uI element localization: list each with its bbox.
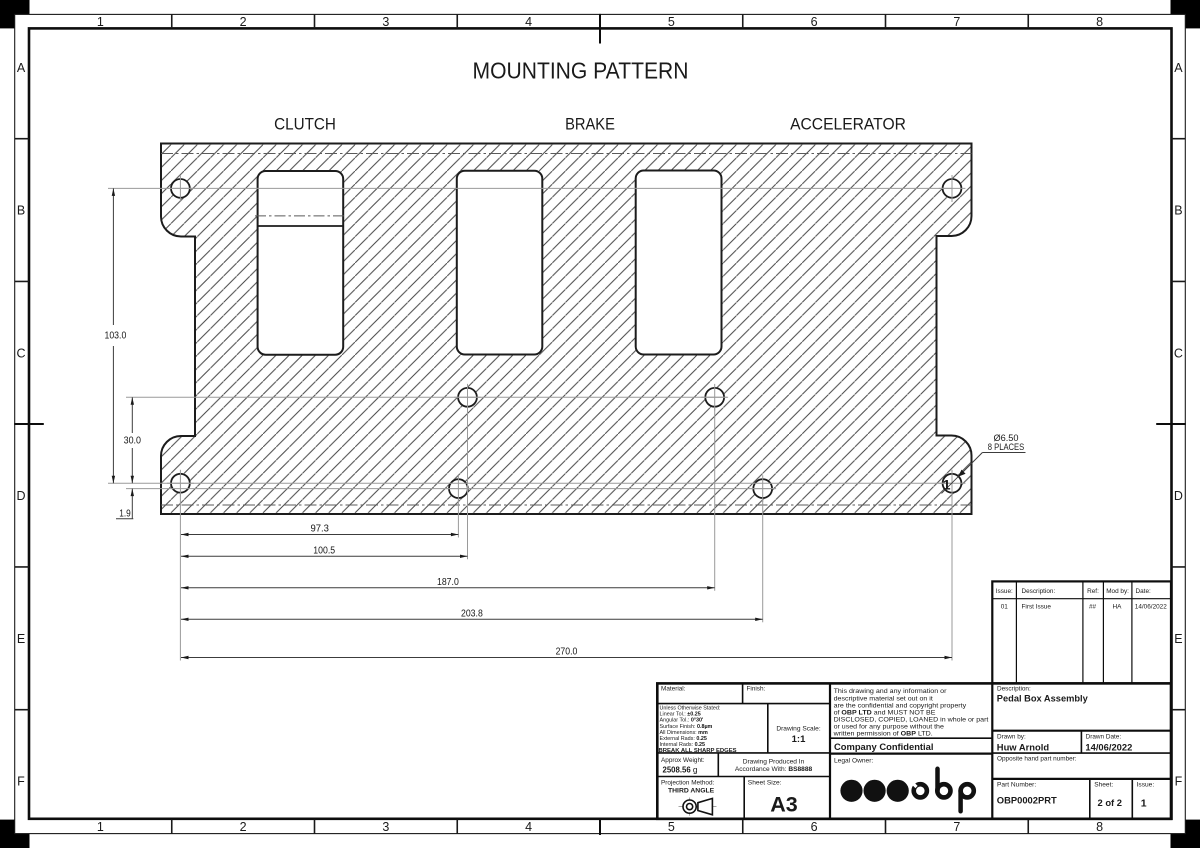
svg-text:Approx Weight:: Approx Weight:	[661, 757, 705, 764]
svg-text:7: 7	[953, 15, 960, 29]
svg-text:Finish:: Finish:	[747, 686, 766, 693]
svg-text:270.0: 270.0	[556, 647, 578, 658]
svg-text:8: 8	[1096, 820, 1103, 834]
svg-text:Description:: Description:	[997, 686, 1031, 693]
svg-text:Angular Tol.: 0°30': Angular Tol.: 0°30'	[660, 718, 704, 724]
svg-text:A: A	[1174, 61, 1183, 75]
svg-text:Unless Otherwise Stated:: Unless Otherwise Stated:	[660, 705, 721, 711]
svg-text:B: B	[1174, 204, 1182, 218]
svg-text:30.0: 30.0	[124, 436, 142, 447]
svg-text:5: 5	[668, 820, 675, 834]
svg-text:8: 8	[1096, 15, 1103, 29]
svg-text:Drawing Scale:: Drawing Scale:	[776, 725, 821, 732]
svg-text:Date:: Date:	[1136, 588, 1151, 595]
svg-text:01: 01	[1001, 603, 1009, 610]
svg-text:1:1: 1:1	[792, 734, 806, 745]
svg-text:All Dimensions: mm: All Dimensions: mm	[660, 730, 708, 736]
svg-text:BRAKE: BRAKE	[565, 116, 615, 134]
svg-text:Drawn by:: Drawn by:	[997, 733, 1026, 740]
svg-text:Issue:: Issue:	[1137, 782, 1155, 789]
svg-text:Drawn Date:: Drawn Date:	[1086, 733, 1122, 740]
svg-text:Projection Method:: Projection Method:	[661, 779, 715, 786]
svg-text:Opposite hand part number:: Opposite hand part number:	[997, 755, 1077, 762]
svg-text:D: D	[16, 489, 25, 503]
svg-text:2: 2	[240, 15, 247, 29]
svg-text:14/06/2022: 14/06/2022	[1135, 603, 1167, 610]
svg-text:descriptive material set out o: descriptive material set out on it	[834, 695, 933, 702]
svg-text:A3: A3	[770, 793, 798, 817]
svg-text:written permission of OBP LTD.: written permission of OBP LTD.	[833, 730, 933, 737]
svg-text:F: F	[17, 775, 25, 789]
svg-text:Description:: Description:	[1022, 588, 1056, 595]
svg-text:Company Confidential: Company Confidential	[834, 741, 933, 752]
svg-text:4: 4	[525, 15, 532, 29]
svg-text:2 of 2: 2 of 2	[1098, 797, 1123, 808]
svg-text:97.3: 97.3	[310, 524, 329, 535]
svg-text:A: A	[17, 61, 26, 75]
svg-text:D: D	[1174, 489, 1183, 503]
svg-text:Linear Tol.: ±0.25: Linear Tol.: ±0.25	[660, 711, 701, 717]
svg-text:Legal Owner:: Legal Owner:	[834, 757, 873, 764]
svg-text:1: 1	[1141, 797, 1147, 809]
svg-text:3: 3	[382, 15, 389, 29]
svg-text:Part Number:: Part Number:	[997, 782, 1036, 789]
svg-text:First Issue: First Issue	[1022, 603, 1052, 610]
svg-text:Material:: Material:	[661, 686, 686, 693]
svg-text:8 PLACES: 8 PLACES	[988, 442, 1025, 452]
svg-text:are the confidential and copyr: are the confidential and copyright prope…	[834, 702, 967, 709]
svg-text:F: F	[1175, 775, 1183, 789]
svg-text:Sheet:: Sheet:	[1094, 782, 1113, 789]
svg-text:203.8: 203.8	[461, 608, 483, 619]
svg-text:2508.56 g: 2508.56 g	[663, 764, 698, 774]
svg-text:5: 5	[668, 15, 675, 29]
svg-text:Surface Finish: 0.8µm: Surface Finish: 0.8µm	[660, 724, 713, 730]
svg-text:C: C	[1174, 346, 1183, 360]
svg-text:ACCELERATOR: ACCELERATOR	[790, 116, 906, 134]
svg-text:##: ##	[1089, 603, 1097, 610]
svg-text:MOUNTING PATTERN: MOUNTING PATTERN	[473, 58, 689, 84]
svg-text:C: C	[16, 346, 25, 360]
svg-text:B: B	[17, 204, 25, 218]
svg-text:103.0: 103.0	[105, 331, 127, 342]
svg-text:Sheet Size:: Sheet Size:	[748, 779, 782, 786]
svg-text:100.5: 100.5	[313, 545, 335, 556]
svg-text:6: 6	[811, 15, 818, 29]
svg-text:CLUTCH: CLUTCH	[274, 116, 336, 134]
svg-text:2: 2	[240, 820, 247, 834]
svg-text:6: 6	[811, 820, 818, 834]
svg-text:E: E	[1174, 632, 1182, 646]
svg-text:14/06/2022: 14/06/2022	[1085, 741, 1132, 752]
svg-text:Drawing Produced In: Drawing Produced In	[743, 758, 805, 765]
svg-text:Mod by:: Mod by:	[1106, 588, 1129, 595]
svg-text:of OBP LTD and MUST NOT BE: of OBP LTD and MUST NOT BE	[834, 710, 937, 717]
svg-text:187.0: 187.0	[437, 577, 459, 588]
svg-text:Accordance With: BS8888: Accordance With: BS8888	[735, 766, 813, 773]
svg-text:HA: HA	[1113, 603, 1123, 610]
svg-text:THIRD ANGLE: THIRD ANGLE	[668, 787, 715, 794]
svg-text:Issue:: Issue:	[996, 588, 1013, 595]
svg-text:OBP0002PRT: OBP0002PRT	[997, 794, 1057, 805]
svg-text:7: 7	[953, 820, 960, 834]
svg-text:4: 4	[525, 820, 532, 834]
svg-text:Ref:: Ref:	[1087, 588, 1099, 595]
svg-text:Huw Arnold: Huw Arnold	[997, 741, 1050, 752]
svg-text:1: 1	[97, 820, 104, 834]
svg-text:3: 3	[382, 820, 389, 834]
svg-text:1.9: 1.9	[119, 508, 131, 519]
svg-text:Pedal Box Assembly: Pedal Box Assembly	[997, 694, 1088, 704]
svg-text:E: E	[17, 632, 25, 646]
svg-text:1: 1	[943, 476, 951, 492]
svg-text:This drawing and any informati: This drawing and any information or	[834, 688, 948, 695]
svg-text:1: 1	[97, 15, 104, 29]
svg-text:BREAK ALL SHARP EDGES: BREAK ALL SHARP EDGES	[659, 748, 737, 754]
